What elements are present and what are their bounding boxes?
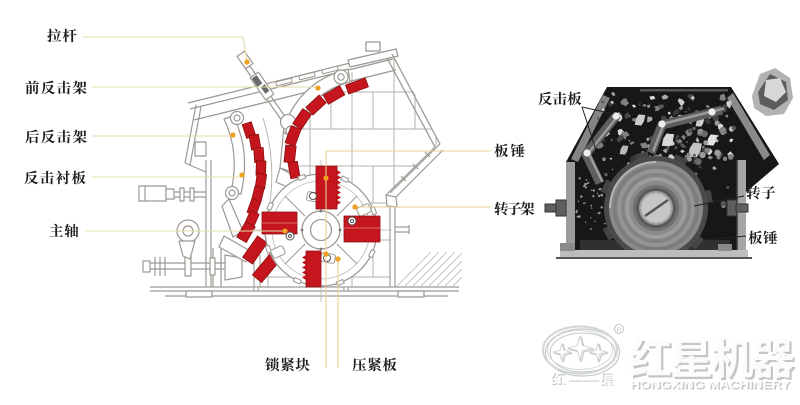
svg-text:HONGXING MACHINERY: HONGXING MACHINERY	[630, 379, 791, 391]
svg-text:R: R	[617, 327, 622, 334]
